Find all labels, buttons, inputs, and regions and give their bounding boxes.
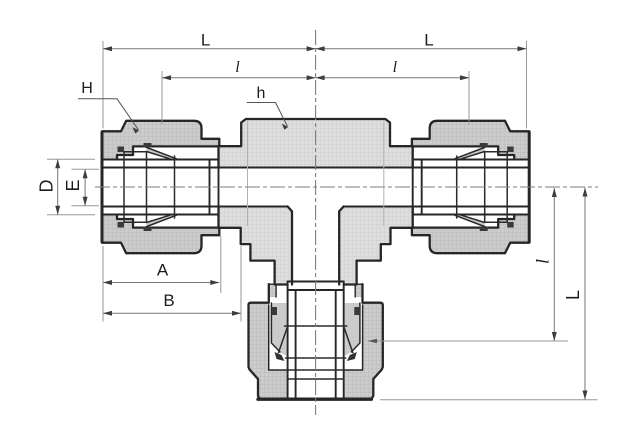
svg-text:L: L [424,31,433,50]
svg-text:h: h [257,85,266,102]
svg-text:L: L [563,290,583,300]
svg-text:L: L [201,31,210,50]
svg-text:E: E [63,179,83,191]
svg-text:l: l [393,59,398,76]
svg-text:H: H [81,80,93,97]
svg-text:A: A [157,261,169,280]
svg-text:D: D [37,180,57,193]
svg-text:l: l [533,259,553,264]
svg-text:B: B [163,291,174,310]
svg-text:l: l [235,59,240,76]
